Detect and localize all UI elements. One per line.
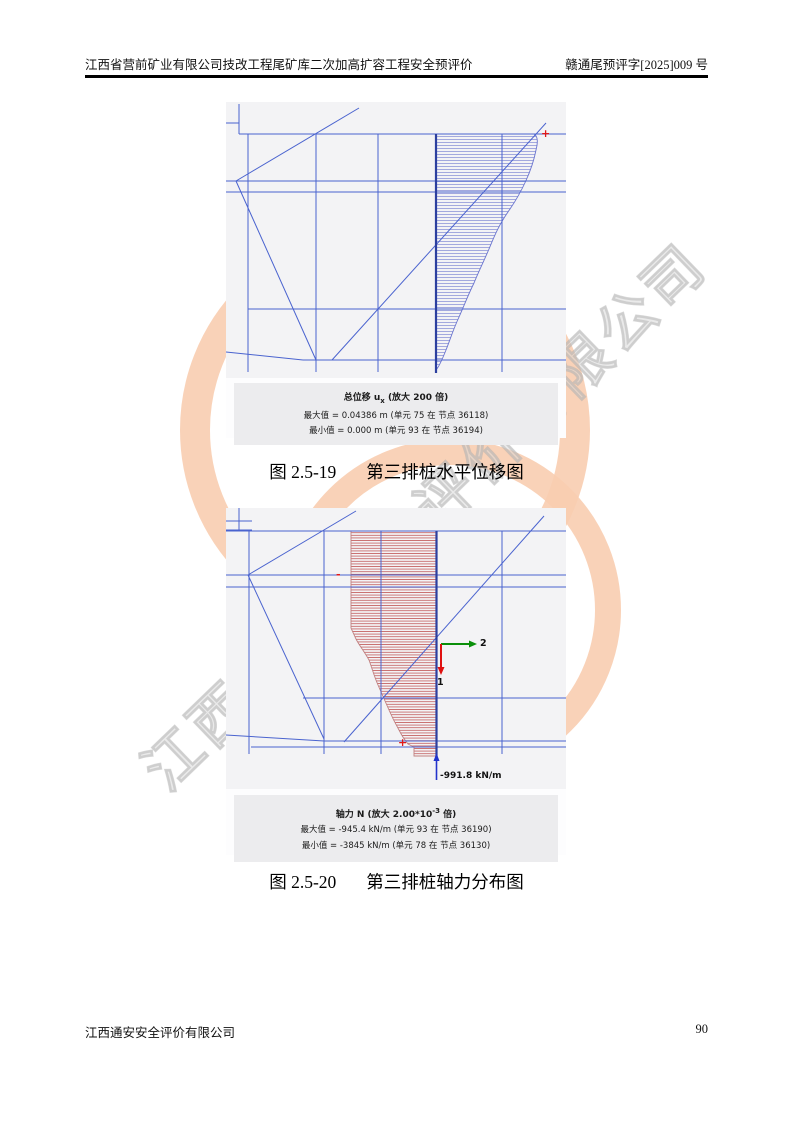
axis-1-label: 1	[437, 678, 444, 687]
minus-marker: -	[336, 570, 341, 580]
page-footer: 江西通安安全评价有限公司 90	[85, 1022, 708, 1041]
header-rule	[85, 75, 708, 78]
page-header: 江西省营前矿业有限公司技改工程尾矿库二次加高扩容工程安全预评价 赣通尾预评字[2…	[85, 54, 708, 73]
legend-title: 总位移 ux (放大 200 倍)	[234, 391, 558, 409]
figure1-caption-number: 图 2.5-19	[269, 462, 336, 482]
axial-force-legend: 轴力 N (放大 2.00*10-3 倍) 最大值 = -945.4 kN/m …	[234, 795, 558, 862]
figure1-caption: 图 2.5-19第三排桩水平位移图	[0, 459, 793, 484]
figure-axial-force-plot: - + 2 1 -991.8 kN/m 轴力 N (放大 2.00*10-3 倍…	[226, 508, 566, 855]
figure1-caption-title: 第三排桩水平位移图	[366, 462, 524, 482]
footer-page-number: 90	[696, 1022, 709, 1041]
legend-min-value: 最小值 = -3845 kN/m (单元 78 在 节点 36130)	[234, 839, 558, 855]
figure2-caption-title: 第三排桩轴力分布图	[366, 872, 524, 892]
figure-displacement-plot: + 总位移 ux (放大 200 倍) 最大值 = 0.04386 m (单元 …	[226, 102, 566, 438]
header-doc-number: 赣通尾预评字[2025]009 号	[565, 54, 708, 73]
header-title: 江西省营前矿业有限公司技改工程尾矿库二次加高扩容工程安全预评价	[85, 54, 473, 73]
displacement-legend: 总位移 ux (放大 200 倍) 最大值 = 0.04386 m (单元 75…	[234, 383, 558, 445]
axial-force-value-label: -991.8 kN/m	[440, 772, 502, 781]
legend-max-value: 最大值 = -945.4 kN/m (单元 93 在 节点 36190)	[234, 823, 558, 839]
legend-min-value: 最小值 = 0.000 m (单元 93 在 节点 36194)	[234, 424, 558, 440]
legend-title: 轴力 N (放大 2.00*10-3 倍)	[234, 804, 558, 823]
plus-marker: +	[398, 738, 407, 748]
figure2-caption: 图 2.5-20第三排桩轴力分布图	[0, 869, 793, 894]
document-page: 江西通安安全评价有限公司 江西省营前矿业有限公司技改工程尾矿库二次加高扩容工程安…	[0, 0, 793, 1122]
footer-company: 江西通安安全评价有限公司	[85, 1022, 235, 1041]
figure2-caption-number: 图 2.5-20	[269, 872, 336, 892]
legend-max-value: 最大值 = 0.04386 m (单元 75 在 节点 36118)	[234, 409, 558, 425]
axis-2-label: 2	[480, 639, 487, 648]
plus-marker: +	[541, 129, 550, 139]
